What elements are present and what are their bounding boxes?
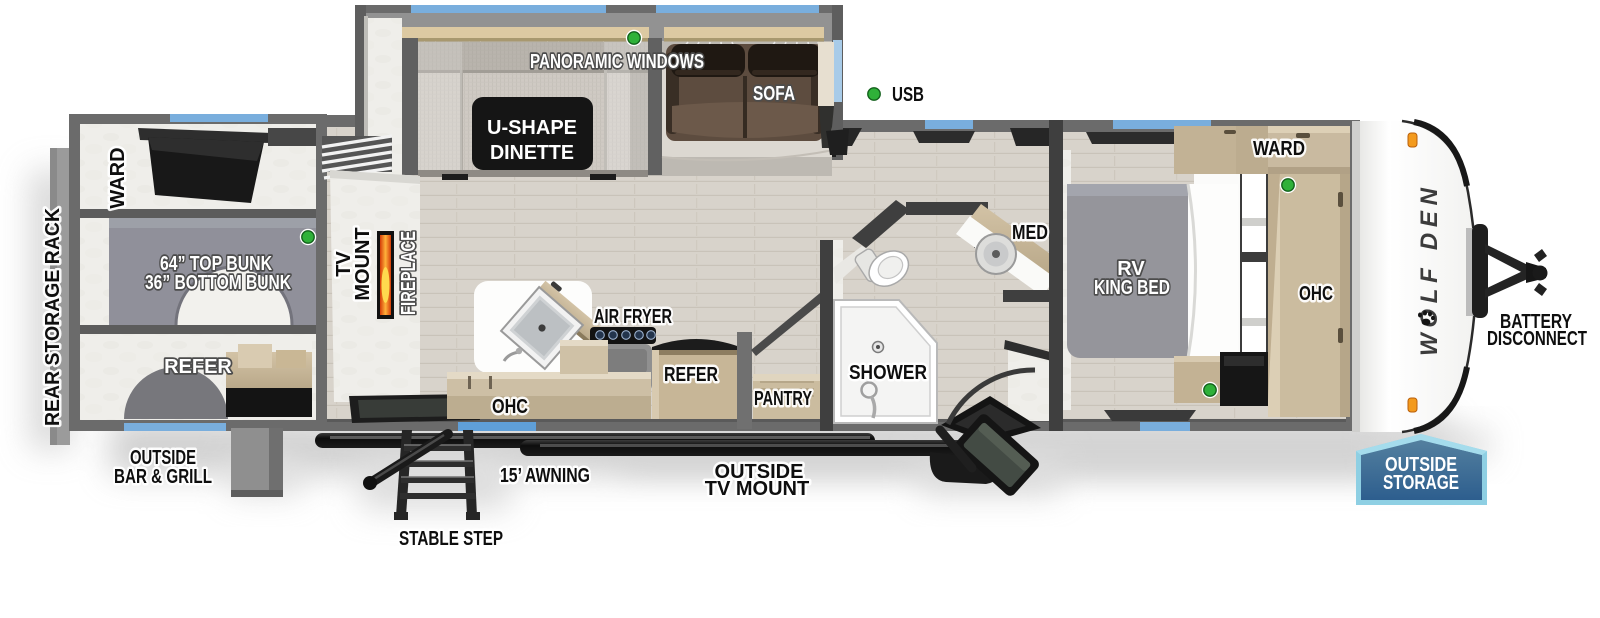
svg-text:BAR & GRILL: BAR & GRILL (114, 466, 212, 488)
svg-text:WOLF DEN: WOLF DEN (1416, 184, 1443, 356)
svg-text:U-SHAPE: U-SHAPE (487, 117, 577, 139)
svg-text:USB: USB (892, 84, 924, 106)
svg-text:DINETTE: DINETTE (490, 142, 574, 164)
svg-text:MOUNT: MOUNT (352, 227, 374, 300)
svg-text:FIREPLACE: FIREPLACE (398, 231, 420, 315)
svg-text:15’ AWNING: 15’ AWNING (500, 465, 590, 487)
svg-text:MED: MED (1012, 222, 1048, 244)
svg-text:STABLE STEP: STABLE STEP (399, 528, 503, 550)
svg-text:SOFA: SOFA (753, 83, 795, 105)
svg-text:WARD: WARD (1253, 138, 1305, 160)
svg-text:AIR FRYER: AIR FRYER (594, 306, 672, 328)
svg-text:TV MOUNT: TV MOUNT (705, 478, 809, 500)
svg-text:OHC: OHC (1299, 283, 1333, 305)
svg-text:OHC: OHC (492, 396, 528, 418)
svg-text:KING BED: KING BED (1094, 277, 1170, 299)
svg-text:PANORAMIC WINDOWS: PANORAMIC WINDOWS (530, 51, 704, 73)
svg-text:PANTRY: PANTRY (754, 388, 812, 410)
svg-text:WARD: WARD (107, 147, 129, 208)
svg-text:STORAGE: STORAGE (1383, 472, 1459, 494)
svg-text:36” BOTTOM BUNK: 36” BOTTOM BUNK (145, 272, 291, 294)
svg-text:REAR STORAGE RACK: REAR STORAGE RACK (42, 207, 64, 426)
svg-text:SHOWER: SHOWER (849, 362, 927, 384)
svg-text:DISCONNECT: DISCONNECT (1487, 328, 1587, 350)
svg-text:REFER: REFER (164, 356, 232, 378)
svg-text:REFER: REFER (664, 364, 718, 386)
